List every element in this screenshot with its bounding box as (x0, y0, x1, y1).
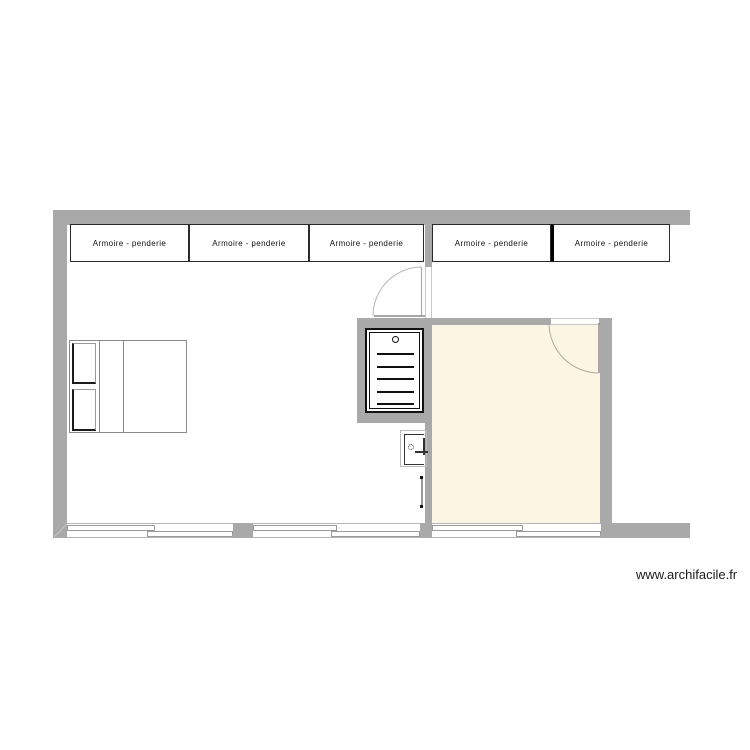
window-pane (331, 531, 420, 537)
bed-pillow (72, 389, 96, 431)
wardrobe-label: Armoire - penderie (212, 239, 285, 248)
wardrobe-box[interactable]: Armoire - penderie (432, 224, 551, 262)
wardrobe-label: Armoire - penderie (455, 239, 528, 248)
sliding-window-symbol[interactable] (253, 523, 420, 538)
floor-plan-canvas: Armoire - penderie Armoire - penderie Ar… (0, 0, 750, 750)
sliding-window-symbol[interactable] (432, 523, 601, 538)
room-right-wall[interactable] (600, 318, 612, 523)
wardrobe-box[interactable]: Armoire - penderie (70, 224, 189, 262)
wall-bar-end (420, 476, 423, 479)
sliding-window-symbol[interactable] (67, 523, 233, 538)
wall-bottom-pier-1[interactable] (233, 523, 253, 538)
radiator-bar (377, 391, 414, 393)
wardrobe-label: Armoire - penderie (93, 239, 166, 248)
double-bed-symbol[interactable] (69, 340, 187, 433)
door-opening-room (551, 318, 599, 325)
wardrobe-label: Armoire - penderie (330, 239, 403, 248)
wall-bar-end (420, 505, 423, 508)
bed-pillow (72, 343, 96, 384)
door-opening-partition (425, 267, 432, 318)
window-pane (516, 531, 601, 537)
room-floor[interactable] (432, 325, 600, 523)
watermark-text: www.archifacile.fr (636, 567, 737, 582)
basin-drain-icon (408, 444, 414, 450)
basin-tap (415, 451, 428, 453)
window-pane (253, 525, 337, 531)
radiator-knob-icon (392, 336, 399, 343)
radiator-bar (377, 403, 414, 405)
wall-bottom-right-stub[interactable] (601, 523, 690, 538)
wall-left[interactable] (53, 210, 67, 538)
bed-fold-line (99, 341, 100, 432)
basin-bowl (404, 434, 424, 465)
wall-partition-upper[interactable] (425, 225, 432, 267)
wardrobe-label: Armoire - penderie (575, 239, 648, 248)
wardrobe-box[interactable]: Armoire - penderie (189, 224, 309, 262)
bed-fold-line (123, 341, 124, 432)
radiator-bar (377, 353, 414, 355)
window-pane (432, 525, 523, 531)
window-pane (147, 531, 233, 537)
radiator-bar (377, 378, 414, 380)
wardrobe-box[interactable]: Armoire - penderie (309, 224, 424, 262)
swing-door-symbol[interactable] (373, 267, 425, 316)
radiator-frame (369, 332, 420, 409)
wall-top[interactable] (53, 210, 690, 225)
radiator-bar (377, 366, 414, 368)
wall-bar-symbol[interactable] (421, 478, 423, 507)
window-pane (67, 525, 155, 531)
wardrobe-box[interactable]: Armoire - penderie (551, 224, 670, 262)
towel-radiator-symbol[interactable] (365, 328, 424, 413)
